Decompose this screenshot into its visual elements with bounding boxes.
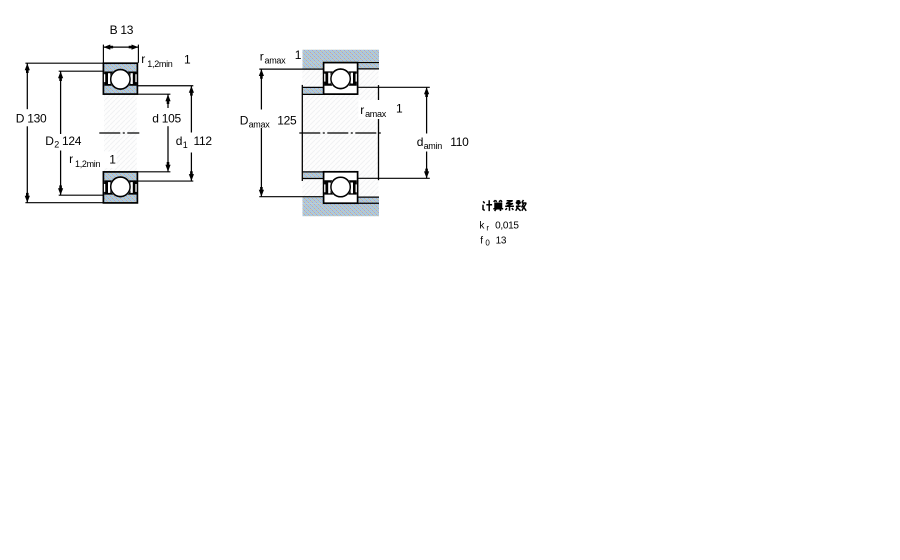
svg-text:d: d: [176, 134, 182, 148]
svg-text:1: 1: [396, 102, 403, 116]
svg-text:1: 1: [184, 52, 191, 66]
svg-text:1: 1: [109, 152, 116, 166]
svg-text:1,2min: 1,2min: [147, 59, 173, 69]
svg-text:d: d: [417, 135, 423, 149]
svg-text:amin: amin: [424, 141, 443, 151]
svg-text:125: 125: [277, 114, 297, 128]
svg-text:r: r: [486, 224, 489, 233]
svg-text:112: 112: [194, 134, 213, 148]
svg-text:124: 124: [62, 134, 82, 148]
svg-text:amax: amax: [249, 119, 271, 129]
svg-text:amax: amax: [365, 109, 387, 119]
svg-text:2: 2: [54, 139, 59, 149]
svg-text:r: r: [360, 103, 364, 117]
svg-text:1: 1: [295, 48, 302, 62]
svg-text:1: 1: [183, 140, 188, 150]
svg-text:B 13: B 13: [110, 23, 134, 37]
svg-text:r: r: [69, 152, 73, 166]
svg-text:13: 13: [496, 236, 507, 247]
svg-text:amax: amax: [265, 55, 287, 65]
svg-text:D 130: D 130: [16, 111, 47, 125]
svg-text:k: k: [479, 221, 485, 232]
svg-text:110: 110: [450, 135, 469, 149]
svg-text:f: f: [480, 236, 483, 247]
svg-text:r: r: [141, 52, 145, 66]
svg-text:D: D: [240, 114, 249, 128]
svg-text:d 105: d 105: [152, 111, 181, 125]
svg-text:D: D: [45, 134, 54, 148]
svg-text:0: 0: [485, 239, 490, 248]
svg-text:r: r: [260, 50, 264, 64]
svg-text:0,015: 0,015: [495, 221, 519, 232]
svg-text:1,2min: 1,2min: [75, 159, 101, 169]
